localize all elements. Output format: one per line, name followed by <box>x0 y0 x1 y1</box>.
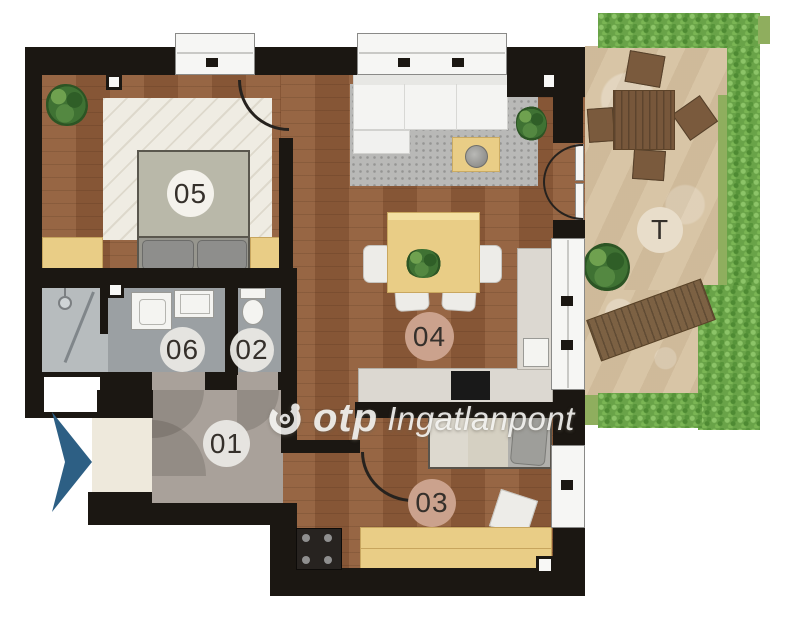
window-bedroom-03-mullion <box>561 480 573 490</box>
terrace-dining-table <box>613 90 675 150</box>
otp-logo-icon <box>266 400 304 438</box>
wall-left <box>25 47 42 390</box>
window-living-room <box>357 33 507 75</box>
window-kitchen-frame <box>567 240 569 388</box>
terrace-chair-top <box>624 50 665 88</box>
window-living-room-mullion-1 <box>398 58 410 67</box>
wall-bedroom03-stub <box>297 440 360 453</box>
dark-cabinet-knob-4 <box>324 556 332 564</box>
window-bedroom-05-frame <box>177 52 253 54</box>
watermark-suffix: Ingatlanpont <box>387 400 575 438</box>
room-label-06-text: 06 <box>166 334 199 366</box>
shower-head-icon <box>58 296 72 310</box>
living-room-plant <box>516 106 547 141</box>
bedroom-05-plant <box>46 84 88 126</box>
wall-bedroom05-bath <box>25 268 281 288</box>
terrace-chair-left <box>587 107 615 143</box>
room-label-05: 05 <box>167 170 214 217</box>
floor-entry-vestibule <box>92 418 152 494</box>
room-label-terrace: T <box>637 207 683 253</box>
sofa-chaise <box>353 130 410 154</box>
dining-table-centerpiece <box>405 249 442 278</box>
watermark-brand: otp <box>313 396 378 441</box>
terrace-hedge-right-upper <box>727 47 760 290</box>
floor-shower-zone <box>42 288 108 372</box>
bedroom-05-nightstand-left <box>42 237 103 270</box>
wall-entry-top <box>97 390 153 418</box>
sofa <box>353 68 508 130</box>
bedroom-05-pillow-right <box>197 240 247 270</box>
room-label-02-text: 02 <box>235 334 268 366</box>
wall-top-middle <box>255 47 357 75</box>
dark-cabinet-knob-3 <box>302 556 310 564</box>
bedroom-03-wardrobe-seam <box>360 548 552 549</box>
entrance-arrow-icon <box>50 410 94 514</box>
bathroom-sink-basin <box>180 294 210 314</box>
wall-right-b <box>553 220 585 238</box>
window-living-room-frame <box>359 52 505 54</box>
wall-right-a <box>553 97 583 143</box>
room-label-01: 01 <box>203 420 250 467</box>
window-kitchen-mullion-1 <box>561 296 573 306</box>
room-label-02: 02 <box>230 328 274 372</box>
toilet-bowl <box>242 299 264 325</box>
window-bedroom-05 <box>175 33 255 75</box>
wall-right-d <box>553 528 585 573</box>
washing-machine-door <box>139 299 166 325</box>
wall-top-left <box>25 47 175 75</box>
wall-pillar-1 <box>106 74 122 90</box>
terrace-chair-bottom <box>632 149 666 181</box>
room-label-06: 06 <box>160 327 205 372</box>
sofa-cushion-divider-2 <box>456 84 457 130</box>
dark-cabinet-knob-1 <box>302 534 310 542</box>
window-bedroom-05-mullion <box>206 58 218 67</box>
room-label-terrace-text: T <box>651 214 669 246</box>
coffee-table-decor <box>465 145 488 168</box>
dark-cabinet-knob-2 <box>324 534 332 542</box>
wall-pillar-3 <box>536 556 554 574</box>
watermark: otp Ingatlanpont <box>266 396 575 441</box>
room-label-05-text: 05 <box>174 178 207 210</box>
kitchen-sink <box>523 338 549 367</box>
bedroom-05-pillow-left <box>142 240 194 270</box>
terrace-hedge-top <box>598 13 760 48</box>
room-label-04-text: 04 <box>413 321 446 353</box>
room-label-01-text: 01 <box>210 428 243 460</box>
window-kitchen-mullion-2 <box>561 340 573 350</box>
terrace-grass-corner <box>758 16 770 44</box>
terrace-hedge-bottom <box>598 393 702 428</box>
sofa-cushion-divider-1 <box>404 84 405 130</box>
room-label-03: 03 <box>408 479 456 527</box>
wall-bedroom05-living <box>279 138 293 268</box>
room-label-03-text: 03 <box>415 487 448 519</box>
window-living-room-mullion-2 <box>452 58 464 67</box>
bedroom-05-nightstand-right <box>250 237 281 270</box>
toilet-tank <box>240 288 266 299</box>
terrace-plant <box>584 243 630 291</box>
room-label-04: 04 <box>405 312 454 361</box>
wall-pillar-4 <box>107 282 124 298</box>
wall-pillar-2 <box>541 72 557 90</box>
floor-plan: 05 06 02 01 04 03 T otp Ingatlanpont <box>0 0 800 633</box>
wall-hall-bottom <box>88 503 292 525</box>
wall-notch-inset <box>44 377 100 412</box>
